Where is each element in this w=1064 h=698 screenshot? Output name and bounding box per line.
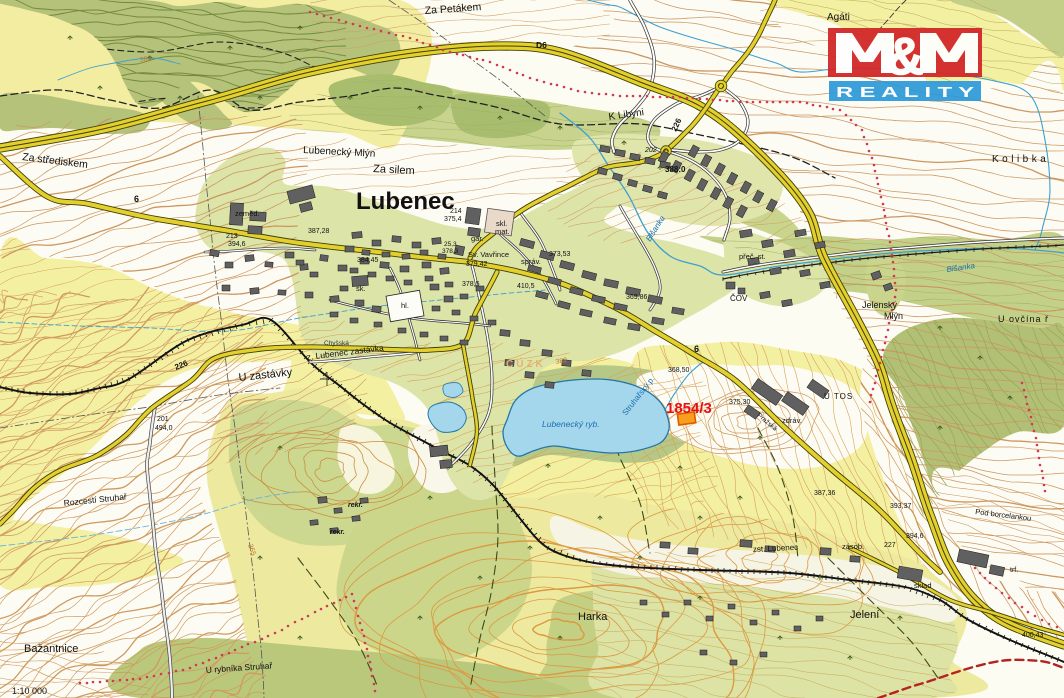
svg-text:Jelenský: Jelenský [862,300,898,310]
svg-text:R E A L I T Y: R E A L I T Y [836,84,974,101]
svg-text:387,36: 387,36 [814,490,836,497]
svg-text:šk.: šk. [356,284,366,293]
svg-text:Bažantnice: Bažantnice [24,643,78,655]
svg-text:394,6: 394,6 [906,533,924,540]
svg-text:Chyšská: Chyšská [324,340,349,347]
svg-text:zásob.: zásob. [842,542,864,551]
svg-text:375,4: 375,4 [444,216,462,223]
svg-text:6: 6 [134,194,139,204]
svg-text:201: 201 [157,416,169,423]
svg-text:Mlýn: Mlýn [884,311,903,321]
svg-text:400,43: 400,43 [1022,632,1044,639]
svg-text:373,53: 373,53 [549,251,571,258]
svg-text:214: 214 [450,208,462,215]
svg-text:368,50: 368,50 [668,367,690,374]
svg-text:227: 227 [884,542,896,549]
svg-text:Lubenec: Lubenec [356,188,455,215]
svg-text:384,45: 384,45 [357,257,379,264]
svg-text:gar.: gar. [471,234,484,243]
svg-text:U ovčína ř: U ovčína ř [998,314,1049,324]
svg-text:Jelení: Jelení [850,609,879,621]
svg-text:393,37: 393,37 [890,503,912,510]
svg-text:ČOV: ČOV [730,294,748,303]
svg-text:378,5: 378,5 [462,281,480,288]
svg-text:387,28: 387,28 [308,228,330,235]
svg-text:375,30: 375,30 [729,399,751,406]
svg-text:zdráv.: zdráv. [782,416,802,425]
svg-text:Agáti: Agáti [827,12,850,23]
svg-text:hl.: hl. [401,301,409,310]
svg-text:rekr.: rekr. [330,529,345,536]
svg-text:správ.: správ. [521,257,541,266]
svg-text:U TOS: U TOS [824,392,853,401]
svg-text:388:0: 388:0 [665,165,686,174]
svg-text:394,6: 394,6 [228,241,246,248]
svg-text:Lubenecký ryb.: Lubenecký ryb. [542,419,600,429]
svg-text:379,42: 379,42 [466,261,488,268]
svg-text:202: 202 [644,147,657,154]
svg-text:494,0: 494,0 [155,425,173,432]
svg-text:378,3: 378,3 [442,248,459,255]
svg-text:D6: D6 [536,40,547,50]
svg-text:Za silem: Za silem [373,163,415,177]
svg-text:1854/3: 1854/3 [666,400,712,417]
svg-text:369,86: 369,86 [626,294,648,301]
svg-text:Sv. Vavřince: Sv. Vavřince [468,250,509,259]
svg-text:CÚZK: CÚZK [506,357,546,370]
svg-text:1:10 000: 1:10 000 [12,686,47,696]
svg-text:&: & [886,28,924,86]
svg-text:Kolibka: Kolibka [992,154,1049,165]
svg-text:410,5: 410,5 [517,283,535,290]
svg-text:mat.: mat. [495,227,510,236]
svg-text:Harka: Harka [578,611,608,623]
svg-text:25,3: 25,3 [444,241,457,248]
svg-text:sklad: sklad [914,581,932,590]
svg-text:trf.: trf. [1010,567,1018,574]
svg-text:6: 6 [694,344,699,354]
svg-text:213: 213 [226,233,238,240]
svg-text:zeměd.: zeměd. [235,209,260,218]
svg-text:přeč. st.: přeč. st. [739,252,766,261]
svg-text:rekr.: rekr. [348,502,363,509]
